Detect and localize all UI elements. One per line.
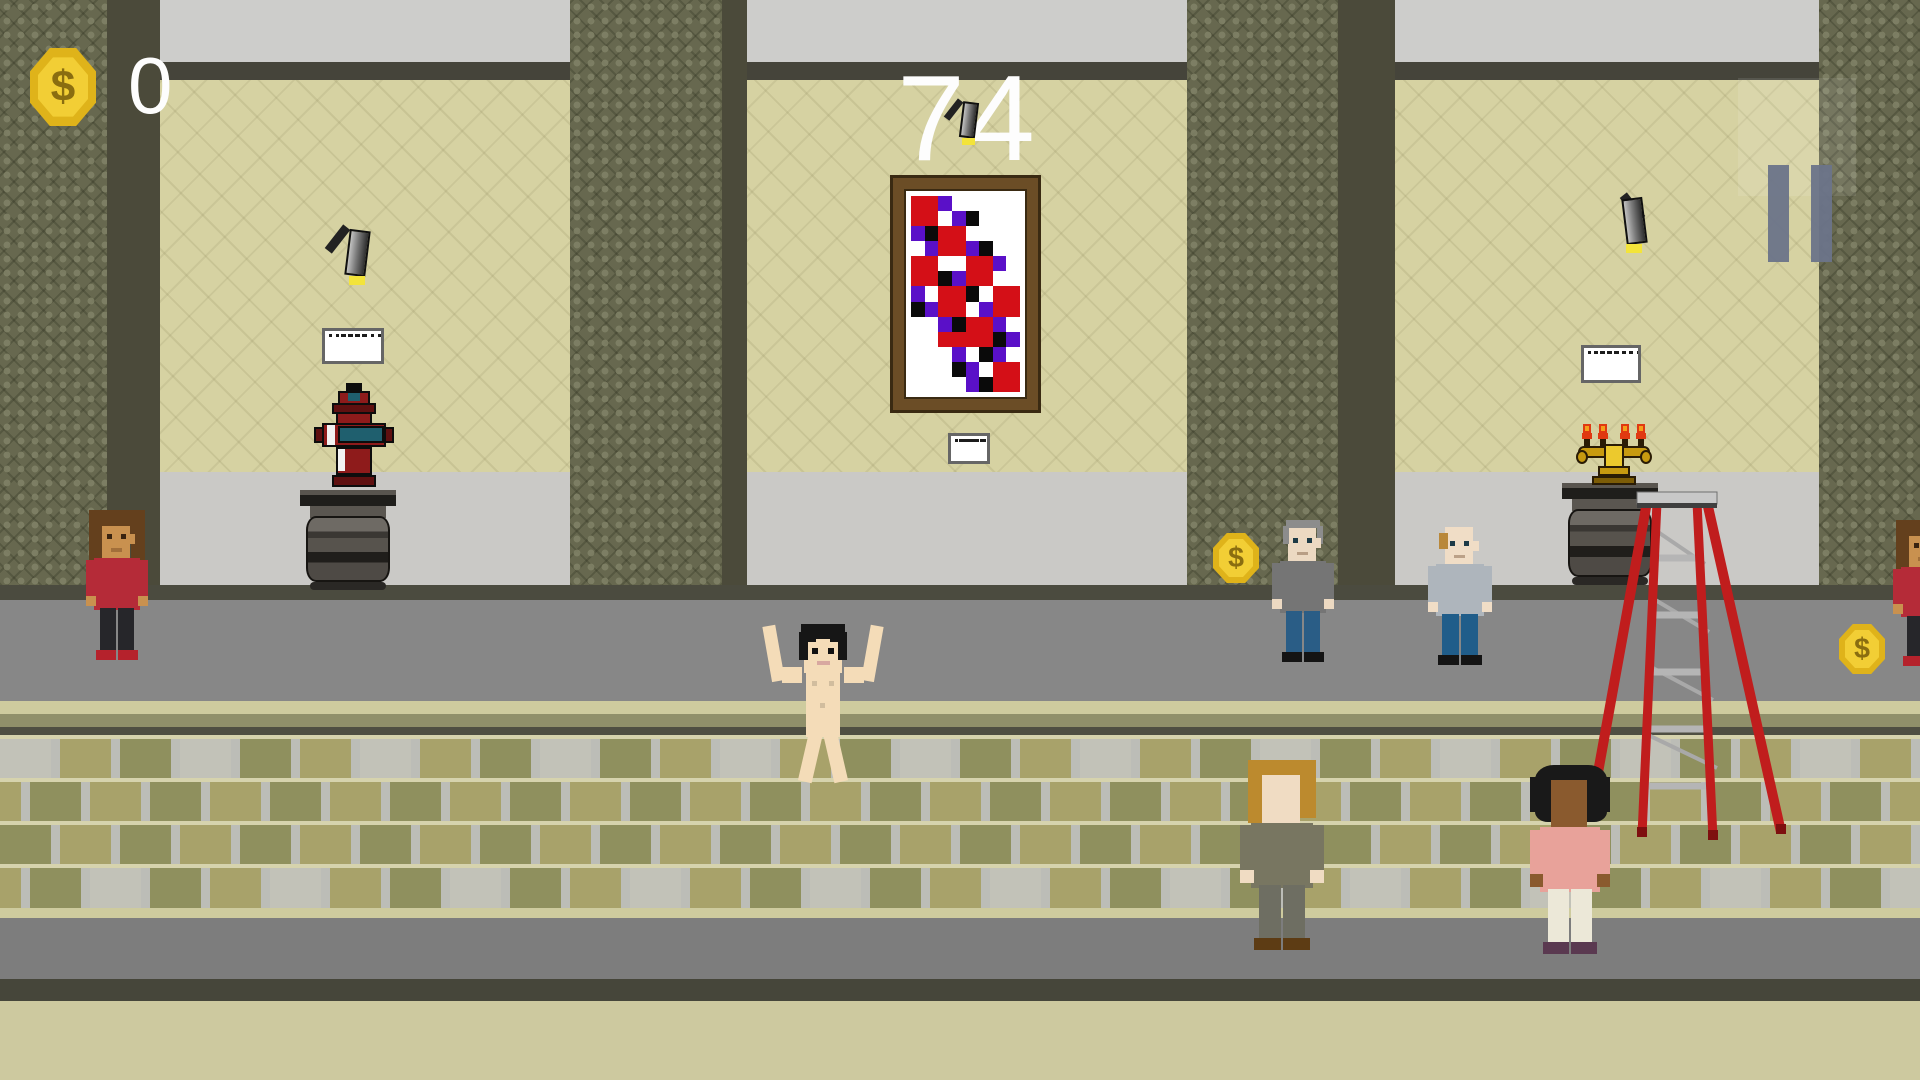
placard-painting <box>948 433 990 464</box>
game-viewport[interactable]: 74 $$ $ 0 <box>0 0 1920 1080</box>
lamp-head <box>344 229 370 277</box>
pause-button[interactable] <box>1738 78 1856 196</box>
gallery-column <box>570 0 722 585</box>
pause-icon <box>1768 165 1789 262</box>
lamp-light <box>962 138 974 145</box>
visitor-man-gray <box>1272 512 1334 670</box>
streaker[interactable] <box>768 623 878 789</box>
coin-counter: 0 <box>128 40 173 132</box>
placard-candelabra <box>1581 345 1641 383</box>
pedestal-hydrant <box>300 490 396 590</box>
visitor-woman-red <box>86 508 148 668</box>
lamp-light <box>1626 244 1642 253</box>
placard-hydrant <box>322 328 384 364</box>
pause-icon <box>1811 165 1832 262</box>
lamp-light <box>349 276 365 285</box>
column-shadow-edge <box>722 0 747 585</box>
visitor-person-pink-back <box>1530 765 1610 964</box>
visitor-man-balding <box>1428 515 1492 673</box>
dollar-sign: $ <box>51 62 75 112</box>
lamp-head <box>959 101 980 139</box>
step-ladder <box>1585 490 1785 840</box>
hydrant-sculpture <box>312 383 396 493</box>
spotlight-center-icon <box>950 96 981 149</box>
abstract-painting <box>893 178 1038 410</box>
visitor-woman-edge <box>1893 518 1920 674</box>
candelabra-sculpture <box>1576 424 1652 486</box>
coin-walkway-right[interactable]: $ <box>1839 624 1885 674</box>
visitor-man-blond-back <box>1240 760 1324 960</box>
gallery-column <box>1187 0 1338 585</box>
spotlight-right-icon <box>1610 190 1650 258</box>
coin-walkway-left[interactable]: $ <box>1213 533 1259 583</box>
lamp-head <box>1621 197 1647 245</box>
spotlight-left-icon <box>333 222 373 290</box>
column-shadow-edge <box>1338 0 1395 585</box>
